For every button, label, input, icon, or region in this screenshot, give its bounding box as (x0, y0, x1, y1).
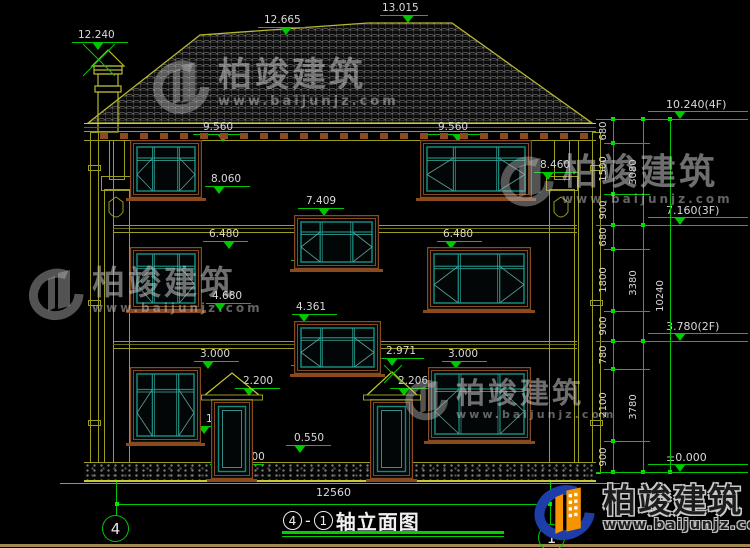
tick-connector-line (604, 194, 650, 195)
elevation-label: 3.000 (200, 348, 230, 360)
eave-dentil (480, 133, 488, 139)
elevation-marker-line (206, 303, 251, 304)
axis-bubble-left-number: 4 (111, 520, 121, 538)
brand-logo-text: 柏竣建筑 www.baijunjz.com (603, 484, 750, 546)
downspout-left-band-1 (88, 165, 101, 171)
elevation-label: 12.665 (264, 14, 301, 26)
leader-cross-icon (83, 44, 115, 76)
level-line (596, 472, 748, 473)
eave-dentil (440, 133, 448, 139)
elevation-marker-line (648, 464, 748, 465)
window-sill (424, 441, 535, 444)
elevation-label: 2.971 (386, 345, 416, 357)
eave-dentil (320, 133, 328, 139)
brand-name: 柏竣建筑 (603, 484, 750, 517)
elevation-marker-line (648, 111, 748, 112)
eave-dentil (280, 133, 288, 139)
pilaster-right-shaft (549, 189, 575, 464)
elevation-marker-triangle-icon (674, 217, 686, 225)
eave-dentil (160, 133, 168, 139)
downspout-left-band-2 (88, 300, 101, 306)
title-ref-a: 4 (283, 511, 302, 530)
title-dash: - (305, 511, 311, 530)
pilaster-left-shield-icon (108, 196, 124, 223)
window-sill (126, 443, 205, 446)
overall-dim-line (117, 504, 550, 505)
eave-dentil (560, 133, 568, 139)
eave-dentil (420, 133, 428, 139)
eave-dentil (540, 133, 548, 139)
elevation-label: 3.780(2F) (666, 320, 719, 333)
elevation-marker-line (194, 361, 239, 362)
eave-dentil (380, 133, 388, 139)
pilaster-right-shield-icon (553, 196, 569, 223)
window-sill (416, 198, 536, 201)
overall-dim-tick-left (115, 502, 119, 506)
eave-fascia (84, 123, 596, 124)
elevation-label: 4.680 (212, 290, 242, 302)
dim-chain-value: 10240 (655, 274, 667, 318)
door (370, 399, 413, 479)
eave-dentil (360, 133, 368, 139)
dim-chain-value: 3780 (628, 385, 640, 429)
eave-line-1 (84, 127, 596, 128)
elevation-marker-line (286, 445, 331, 446)
dim-chain-value: 1500 (598, 147, 610, 191)
window (428, 367, 531, 441)
eave-dentil (180, 133, 188, 139)
dim-chain-line (613, 119, 614, 472)
eave-dentil (240, 133, 248, 139)
elevation-label: 8.060 (211, 173, 241, 185)
elevation-marker-line (437, 241, 482, 242)
elevation-label: ±0.000 (666, 451, 707, 464)
eave-dentil (500, 133, 508, 139)
tick-connector-line (604, 249, 650, 250)
tick-connector-line (604, 441, 650, 442)
level-line (596, 341, 748, 342)
leader-cross-icon (384, 365, 402, 383)
window (294, 215, 379, 269)
elevation-marker-triangle-icon (674, 464, 686, 472)
elevation-marker-line (442, 361, 487, 362)
dim-chain-value: 780 (598, 333, 610, 377)
window-sill (423, 310, 535, 313)
door-threshold (207, 479, 257, 482)
door-threshold (366, 479, 417, 482)
elevation-marker-triangle-icon (294, 445, 306, 453)
tick-connector-line (604, 143, 650, 144)
dim-chain-value: 3380 (628, 261, 640, 305)
plinth-band (84, 462, 596, 482)
pilaster-left-shaft (104, 189, 130, 464)
elevation-label: 7.160(3F) (666, 204, 719, 217)
tick-connector-line (604, 311, 650, 312)
level-line (596, 225, 748, 226)
brand-logo-icon (526, 484, 598, 546)
title-ref-b: 1 (314, 511, 333, 530)
window (130, 140, 202, 198)
eave-dentil (300, 133, 308, 139)
elevation-marker-line (205, 186, 250, 187)
eave-dentil (200, 133, 208, 139)
eave-dentil (580, 133, 588, 139)
elevation-marker-triangle-icon (280, 27, 292, 35)
elevation-marker-triangle-icon (674, 111, 686, 119)
elevation-label: 6.480 (443, 228, 473, 240)
window-sill (126, 198, 206, 201)
eave-dentil (140, 133, 148, 139)
window (294, 321, 381, 374)
window-sill (290, 269, 383, 272)
elevation-marker-triangle-icon (542, 172, 554, 180)
brand-logo-block: 柏竣建筑 www.baijunjz.com (526, 484, 750, 546)
elevation-label: 10.240(4F) (666, 98, 726, 111)
title-underline-thick (282, 531, 504, 534)
elevation-marker-triangle-icon (213, 186, 225, 194)
eave-dentil (120, 133, 128, 139)
eave-dentil (400, 133, 408, 139)
dim-chain-value: 3080 (628, 150, 640, 194)
elevation-marker-triangle-icon (674, 333, 686, 341)
window (130, 367, 201, 443)
elevation-marker-line (648, 333, 748, 334)
elevation-label: 13.015 (382, 2, 419, 14)
window-sill (126, 310, 206, 313)
pilaster-left-neck (109, 140, 125, 180)
elevation-label: 9.560 (203, 121, 233, 133)
door-pediment (201, 371, 263, 403)
window (427, 247, 531, 310)
dim-chain-value: 680 (598, 215, 610, 259)
downspout-left-band-3 (88, 420, 101, 426)
eave-dentil (520, 133, 528, 139)
elevation-label: 6.480 (209, 228, 239, 240)
dim-chain-line (643, 119, 644, 472)
elevation-label: 3.000 (448, 348, 478, 360)
overall-width-label: 12560 (117, 487, 550, 499)
elevation-marker-triangle-icon (402, 15, 414, 23)
dim-chain-line (670, 119, 671, 472)
eave-dentil (260, 133, 268, 139)
eave-dentil (220, 133, 228, 139)
elevation-marker-triangle-icon (223, 241, 235, 249)
level-line (596, 119, 748, 120)
door (211, 399, 253, 479)
window (130, 247, 202, 310)
elevation-label: 7.409 (306, 195, 336, 207)
window (420, 140, 532, 198)
elevation-label: 0.550 (294, 432, 324, 444)
axis-bubble-left: 4 (102, 515, 129, 542)
dim-chain-value: 2100 (598, 383, 610, 427)
elevation-label: 8.460 (540, 159, 570, 171)
elevation-marker-triangle-icon (214, 303, 226, 311)
title-underline-thin (282, 536, 504, 537)
elevation-label: 4.361 (296, 301, 326, 313)
elevation-drawing-canvas: 12560 4 1 4-1 轴立面图 柏竣建筑 www.bai (0, 0, 750, 548)
elevation-marker-line (534, 172, 578, 173)
elevation-label: 12.240 (78, 29, 115, 41)
eave-dentil (100, 133, 108, 139)
eave-line-2 (84, 131, 596, 132)
elevation-marker-line (648, 217, 748, 218)
dim-chain-value: 1800 (598, 258, 610, 302)
elevation-label: 9.560 (438, 121, 468, 133)
elevation-marker-triangle-icon (202, 361, 214, 369)
eave-dentil (460, 133, 468, 139)
eave-dentil (340, 133, 348, 139)
tick-connector-line (604, 369, 650, 370)
brand-url: www.baijunjz.com (603, 517, 750, 533)
